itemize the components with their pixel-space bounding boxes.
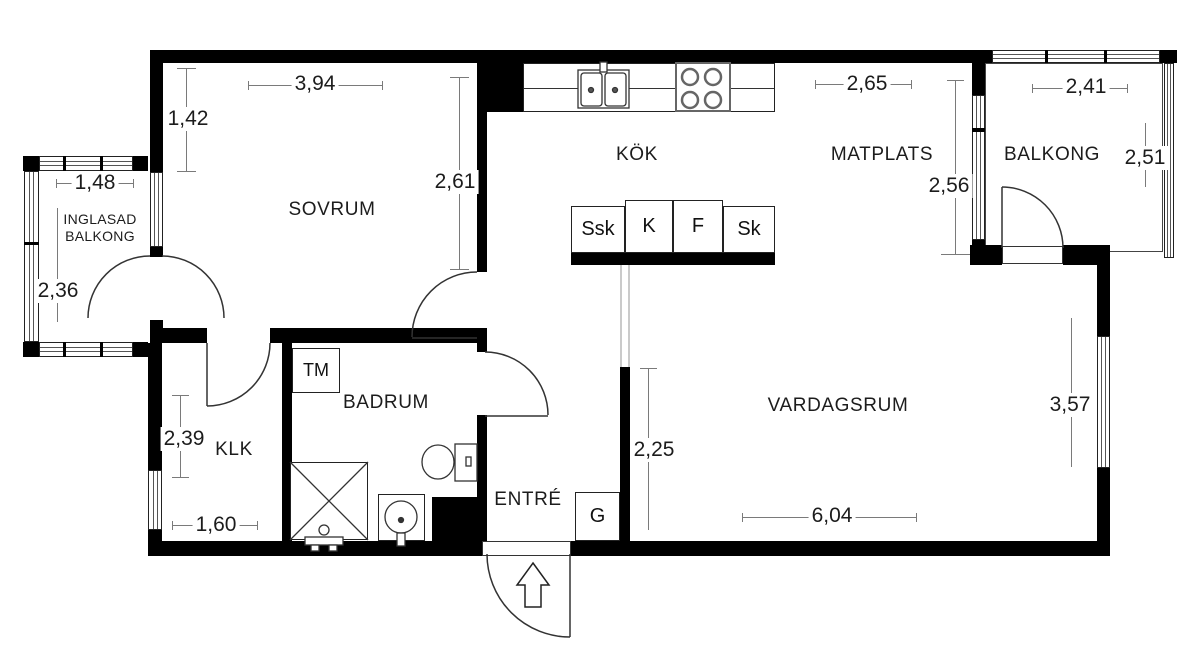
wall-balkong-corner — [1160, 50, 1177, 63]
window-klk — [148, 470, 162, 530]
railing-divider — [1045, 50, 1048, 63]
room-label-kok: KÖK — [616, 144, 658, 166]
room-label-inglasad-balkong: INGLASAD BALKONG — [63, 211, 136, 245]
door-arc-badrum — [485, 352, 548, 415]
wardrobe-box: G — [575, 492, 620, 541]
dim-tick — [450, 269, 469, 270]
cabinet-kyl: K — [625, 200, 673, 253]
wall-badrum-right-lower — [477, 415, 487, 543]
room-label-vardagsrum: VARDAGSRUM — [768, 395, 909, 417]
railing-divider — [1104, 50, 1107, 63]
wall-kok-block — [477, 52, 523, 112]
floor-plan: Ssk K F Sk TM G — [0, 0, 1200, 657]
balkong-railing-top — [992, 50, 1160, 63]
window-divider — [972, 128, 985, 132]
dim-matplats-width: 2,65 — [844, 72, 891, 96]
entrance-threshold — [482, 541, 571, 556]
dim-tick — [172, 477, 189, 478]
room-label-balkong: BALKONG — [1004, 144, 1100, 166]
wall-inglasad-corner-bl — [23, 342, 39, 357]
dim-klk-depth: 2,39 — [161, 427, 208, 451]
dim-tick — [742, 513, 743, 522]
door-arc-entrance — [487, 554, 570, 637]
glazing-divider — [100, 156, 103, 171]
washbasin-box — [378, 494, 425, 541]
wall-inglasad-corner-tr — [133, 156, 148, 171]
shower-box — [290, 462, 368, 540]
inglasad-glazing-left — [24, 171, 39, 342]
cabinet-skap: Sk — [723, 206, 775, 253]
wall-right-upper — [1097, 265, 1110, 336]
toilet-button — [466, 457, 471, 466]
inglasad-glazing-top — [39, 156, 133, 171]
wall-balkong-bottom-right — [1063, 245, 1110, 265]
door-arc-klk — [207, 343, 270, 406]
wall-right-lower — [1097, 468, 1110, 556]
room-label-badrum: BADRUM — [343, 392, 429, 414]
wall-inglasad-corner-br — [133, 342, 148, 357]
wall-balkong-bottom-left — [970, 245, 1002, 265]
glazing-divider — [63, 156, 66, 171]
glazing-divider — [24, 242, 39, 245]
dim-tick — [450, 77, 469, 78]
counter-edge-line — [524, 88, 774, 89]
room-label-klk: KLK — [215, 439, 253, 461]
wall-badrum-corner-mass — [432, 497, 477, 543]
window-matplats-balkong — [972, 95, 985, 240]
dim-tick — [941, 254, 970, 255]
dim-tick — [56, 179, 57, 188]
door-arc-inglasad-left — [88, 256, 150, 318]
dim-tick — [257, 521, 258, 530]
window-sovrum — [150, 172, 163, 247]
wall-bottom-right — [571, 541, 1110, 556]
room-label-matplats: MATPLATS — [831, 144, 933, 166]
glazing-divider — [100, 342, 103, 357]
cabinet-ssk: Ssk — [571, 206, 625, 253]
dim-tick — [382, 81, 383, 90]
dim-tick — [248, 81, 249, 90]
wall-bottom-left — [148, 541, 487, 556]
glazing-divider — [63, 342, 66, 357]
wall-left-upper — [150, 50, 163, 172]
dim-sovrum-depth: 2,61 — [432, 170, 479, 194]
toilet-bowl — [422, 445, 454, 479]
dim-tick — [133, 179, 134, 188]
dim-tick — [815, 80, 816, 89]
dim-balkong-width: 2,41 — [1063, 75, 1110, 99]
wall-sovrum-kok — [477, 112, 487, 272]
dim-vardagsrum-width: 6,04 — [809, 504, 856, 528]
dim-sovrum-recess: 1,42 — [165, 107, 212, 131]
dim-tick — [1127, 84, 1128, 93]
dim-tick — [172, 521, 173, 530]
wall-top — [150, 50, 992, 63]
dim-tick — [911, 80, 912, 89]
dim-vardagsrum-depth: 3,57 — [1047, 393, 1094, 417]
dim-tick — [640, 368, 657, 369]
dim-line — [955, 80, 956, 255]
room-label-entre: ENTRÉ — [494, 489, 561, 511]
dim-inglasad-depth: 2,36 — [35, 279, 82, 303]
dim-tick — [947, 80, 964, 81]
wall-kok-cabinet-bar — [571, 253, 775, 265]
window-vardagsrum — [1097, 336, 1110, 468]
dim-klk-width: 1,60 — [193, 513, 240, 537]
passage-edge-kok — [621, 265, 629, 367]
dim-inglasad-width: 1,48 — [72, 171, 119, 195]
dim-matplats-depth: 2,56 — [926, 174, 973, 198]
wall-entre-vardagsrum — [620, 367, 630, 543]
balkong-threshold — [1002, 246, 1063, 264]
dim-tick — [177, 68, 196, 69]
dim-tick — [172, 395, 189, 396]
dim-balkong-depth: 2,51 — [1122, 146, 1169, 170]
inglasad-glazing-bottom — [39, 342, 133, 357]
wall-badrum-right-upper — [477, 337, 487, 352]
wall-sovrum-bottom-b — [270, 328, 487, 343]
door-arc-inglasad-right — [162, 256, 224, 318]
dim-hall-depth: 2,25 — [631, 438, 678, 462]
wall-left-mid — [150, 247, 163, 257]
dim-tick — [916, 513, 917, 522]
dim-sovrum-width: 3,94 — [292, 72, 339, 96]
wall-matplats-balkong-upper — [972, 63, 985, 95]
washing-machine-box: TM — [292, 348, 340, 393]
wall-sovrum-bottom-a — [162, 328, 207, 343]
room-label-sovrum: SOVRUM — [289, 199, 376, 221]
toilet-tank — [455, 444, 477, 481]
entrance-arrow-icon — [517, 563, 549, 607]
dim-line — [57, 208, 58, 322]
wall-inglasad-corner-tl — [23, 156, 39, 171]
dim-tick — [177, 171, 196, 172]
cabinet-frys: F — [673, 200, 723, 253]
kitchen-counter — [523, 63, 775, 112]
dim-tick — [1032, 84, 1033, 93]
